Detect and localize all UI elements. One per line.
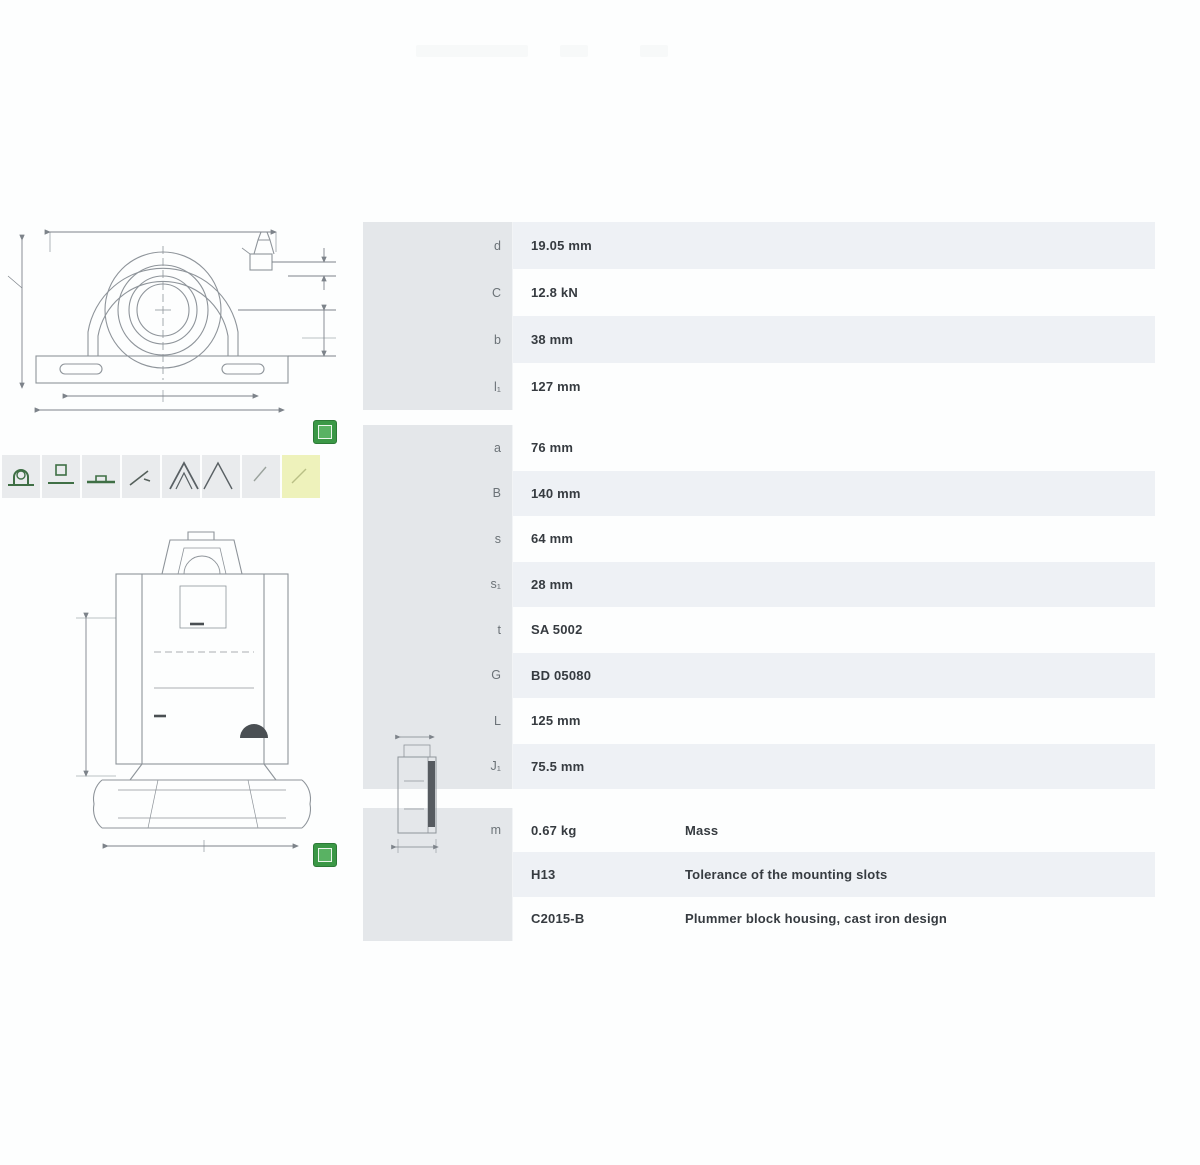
dimension-table-section-1: d 19.05 mm C 12.8 kN b 38 mm l₁ 127 mm (363, 222, 1155, 410)
row-value: 75.5 mm (531, 744, 584, 790)
header-placeholder-chip (560, 45, 588, 57)
row-label: G (363, 653, 501, 699)
pillow-block-side-view-image (58, 528, 350, 860)
row-value: 127 mm (531, 363, 581, 410)
header-placeholder-chip (640, 45, 668, 57)
row-value: 19.05 mm (531, 222, 592, 269)
pillow-block-front-view-image (6, 218, 340, 418)
thumbnail-angle-view[interactable] (162, 455, 200, 498)
row-label: l₁ (363, 363, 501, 410)
row-description: Tolerance of the mounting slots (685, 852, 887, 896)
row-description: Mass (685, 808, 718, 852)
row-label: d (363, 222, 501, 269)
expand-side-view-icon[interactable] (313, 843, 337, 867)
thumbnail-sketch-view[interactable] (122, 455, 160, 498)
row-label: b (363, 316, 501, 363)
row-value: 0.67 kg (531, 808, 577, 852)
row-label: s₁ (363, 562, 501, 608)
drawing-thumbnail-strip (2, 455, 320, 498)
thumbnail-roof-view[interactable] (202, 455, 240, 498)
side-view-drawing (58, 528, 350, 860)
row-value: 64 mm (531, 516, 573, 562)
header-placeholder-bar (416, 45, 528, 57)
thumbnail-front-view[interactable] (2, 455, 40, 498)
row-value: 12.8 kN (531, 269, 578, 316)
expand-front-view-icon[interactable] (313, 420, 337, 444)
expand-icon-glyph (318, 425, 332, 439)
row-label: t (363, 607, 501, 653)
front-view-drawing (6, 218, 340, 418)
row-value: SA 5002 (531, 607, 583, 653)
row-value: 76 mm (531, 425, 573, 471)
row-value: 38 mm (531, 316, 573, 363)
thumbnail-selected-view[interactable] (282, 455, 320, 498)
dimension-table-section-2: a 76 mm B 140 mm s 64 mm s₁ 28 mm t SA 5… (363, 425, 1155, 789)
row-label: C (363, 269, 501, 316)
thumbnail-side-view[interactable] (42, 455, 80, 498)
bearing-cross-section-drawing (384, 729, 452, 859)
row-value: H13 (531, 852, 555, 896)
row-description: Plummer block housing, cast iron design (685, 897, 947, 941)
expand-icon-glyph (318, 848, 332, 862)
row-value: 125 mm (531, 698, 581, 744)
thumbnail-base-view[interactable] (82, 455, 120, 498)
row-label (363, 897, 501, 941)
row-label: B (363, 471, 501, 517)
row-value: C2015-B (531, 897, 584, 941)
thumbnail-light-view[interactable] (242, 455, 280, 498)
row-value: BD 05080 (531, 653, 591, 699)
row-value: 28 mm (531, 562, 573, 608)
row-label: a (363, 425, 501, 471)
dimension-table-section-3: m 0.67 kg Mass H13 Tolerance of the moun… (363, 808, 1155, 941)
row-label: s (363, 516, 501, 562)
product-spec-page: d 19.05 mm C 12.8 kN b 38 mm l₁ 127 mm a… (0, 0, 1200, 1165)
row-value: 140 mm (531, 471, 581, 517)
